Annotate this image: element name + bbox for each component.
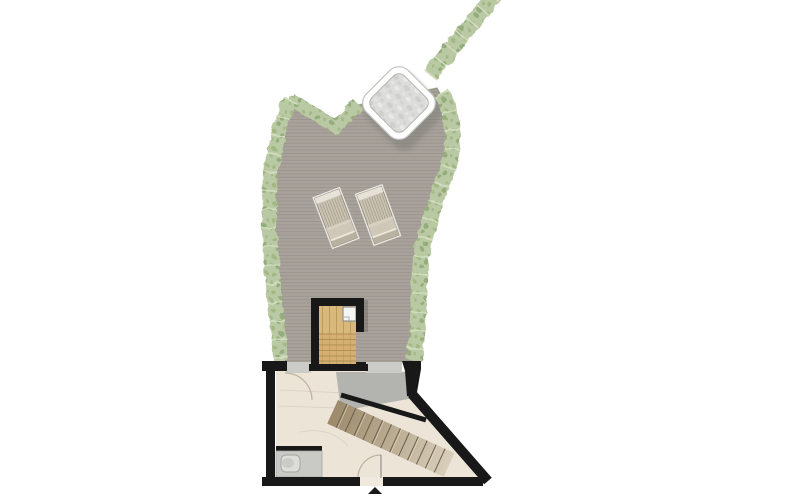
counter-partition-wall <box>276 446 322 451</box>
floor-plan-page <box>0 0 800 500</box>
terrace-door-opening <box>366 362 402 373</box>
entrance-threshold <box>360 477 383 486</box>
stair-room-shadow <box>364 300 368 332</box>
terrace-door-opening <box>286 362 311 373</box>
floor-plan-canvas <box>0 0 800 500</box>
